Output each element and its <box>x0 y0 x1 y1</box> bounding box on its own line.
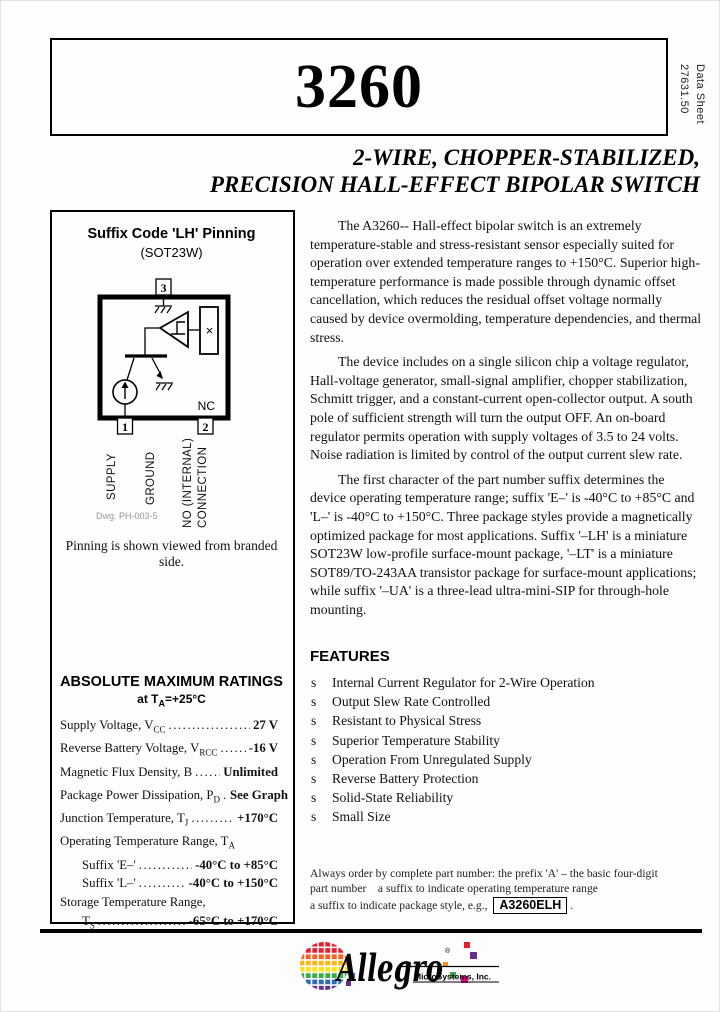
feature-item: sResistant to Physical Stress <box>311 711 701 730</box>
ordering-note-line3: a suffix to indicate package style, e.g.… <box>310 897 710 914</box>
pin2-function-label-line2: CONNECTION <box>197 447 210 528</box>
feature-item: sSmall Size <box>311 807 701 826</box>
allegro-logo: Allegro ® MicroSystems, Inc. <box>295 936 505 1008</box>
abs-max-ratings-list: Supply Voltage, VCC 27 V Reverse Battery… <box>60 716 278 935</box>
rating-row: Suffix 'E–' -40°C to +85°C <box>60 856 278 875</box>
pinning-caption: Pinning is shown viewed from branded sid… <box>52 538 291 570</box>
feature-item: sInternal Current Regulator for 2-Wire O… <box>311 673 701 692</box>
brand-name: Allegro <box>335 946 443 990</box>
ordering-note-line2: part number a suffix to indicate operati… <box>310 881 710 896</box>
pin1-number: 1 <box>122 420 128 434</box>
dot-leader <box>139 856 192 875</box>
feature-item: sOutput Slew Rate Controlled <box>311 692 701 711</box>
bullet-icon: s <box>311 711 332 730</box>
document-title: 2-WIRE, CHOPPER-STABILIZED, PRECISION HA… <box>210 144 700 198</box>
description-paragraph-2: The device includes on a single silicon … <box>310 353 702 465</box>
example-part-number: A3260ELH <box>493 897 567 914</box>
rating-row: Supply Voltage, VCC 27 V <box>60 716 278 739</box>
ordering-note-line1: Always order by complete part number: th… <box>310 866 710 881</box>
feature-item: sSuperior Temperature Stability <box>311 731 701 750</box>
description-paragraph-3: The first character of the part number s… <box>310 471 702 620</box>
rating-row: Storage Temperature Range, <box>60 893 278 912</box>
rating-row: Junction Temperature, TJ +170°C <box>60 809 278 832</box>
bullet-icon: s <box>311 731 332 750</box>
footer-rule <box>40 929 702 933</box>
hall-plate-symbol: × <box>206 323 214 338</box>
abs-max-condition: at TA=+25°C <box>52 692 291 708</box>
rating-row: Magnetic Flux Density, B Unlimited <box>60 763 278 786</box>
dot-leader <box>169 716 250 735</box>
doc-ref: Data Sheet 27631.50 <box>676 64 708 124</box>
pinning-package: (SOT23W) <box>52 245 291 260</box>
document-title-line2: PRECISION HALL-EFFECT BIPOLAR SWITCH <box>210 171 700 198</box>
document-title-line1: 2-WIRE, CHOPPER-STABILIZED, <box>210 144 700 171</box>
feature-item: sOperation From Unregulated Supply <box>311 750 701 769</box>
pinning-title: Suffix Code 'LH' Pinning <box>52 226 291 242</box>
pin1-function-label: SUPPLY <box>106 453 119 500</box>
pin2-number: 2 <box>203 420 209 434</box>
datasheet-page: 3260 Data Sheet 27631.50 2-WIRE, CHOPPER… <box>0 0 720 1012</box>
feature-item: sSolid-State Reliability <box>311 788 701 807</box>
description-paragraph-1: The A3260-- Hall-effect bipolar switch i… <box>310 217 702 347</box>
bullet-icon: s <box>311 769 332 788</box>
dot-leader <box>223 786 227 805</box>
features-list: sInternal Current Regulator for 2-Wire O… <box>311 673 701 827</box>
ordering-note: Always order by complete part number: th… <box>310 866 710 914</box>
bullet-icon: s <box>311 692 332 711</box>
pin3-number: 3 <box>161 281 167 295</box>
mosaic-tile <box>470 952 477 959</box>
part-number: 3260 <box>295 52 423 123</box>
dot-leader <box>98 912 186 931</box>
pinout-schematic: 3 × 1 2 NC <box>88 276 238 438</box>
rating-row: Reverse Battery Voltage, VRCC -16 V <box>60 739 278 762</box>
dot-leader <box>191 809 234 828</box>
bullet-icon: s <box>311 807 332 826</box>
registered-mark-icon: ® <box>445 947 451 955</box>
drawing-reference: Dwg. PH-003-5 <box>96 511 158 521</box>
dot-leader <box>139 874 186 893</box>
pin3-function-label: GROUND <box>145 451 158 505</box>
features-title: FEATURES <box>310 648 390 665</box>
company-name: MicroSystems, Inc. <box>414 972 491 982</box>
bullet-icon: s <box>311 750 332 769</box>
device-description: The A3260-- Hall-effect bipolar switch i… <box>310 217 702 625</box>
doc-ref-label: Data Sheet <box>692 64 708 124</box>
pin2-function-label-line1: NO (INTERNAL) <box>182 438 195 528</box>
bullet-icon: s <box>311 788 332 807</box>
part-number-box: 3260 <box>50 38 668 136</box>
doc-ref-number: 27631.50 <box>676 64 692 124</box>
mosaic-tile <box>464 942 470 948</box>
feature-item: sReverse Battery Protection <box>311 769 701 788</box>
bullet-icon: s <box>311 673 332 692</box>
dot-leader <box>220 739 245 758</box>
rating-row: Operating Temperature Range, TA <box>60 832 278 855</box>
nc-label: NC <box>198 399 216 413</box>
abs-max-title: ABSOLUTE MAXIMUM RATINGS <box>52 674 291 690</box>
dot-leader <box>195 763 220 782</box>
rating-row: Suffix 'L–' -40°C to +150°C <box>60 874 278 893</box>
rating-row: Package Power Dissipation, PD See Graph <box>60 786 278 809</box>
